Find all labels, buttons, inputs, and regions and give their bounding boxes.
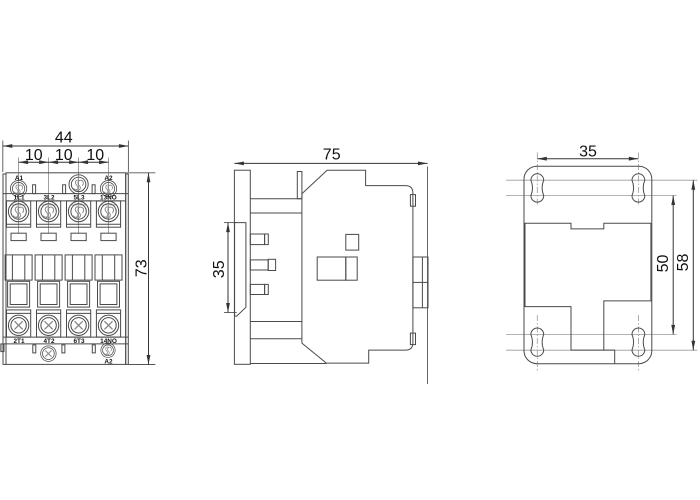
svg-text:2T1: 2T1 — [13, 338, 24, 345]
svg-text:A1: A1 — [15, 175, 24, 182]
svg-text:10: 10 — [86, 147, 104, 164]
svg-text:14NO: 14NO — [100, 338, 117, 345]
svg-text:58: 58 — [675, 254, 692, 272]
svg-text:10: 10 — [25, 147, 43, 164]
svg-text:35: 35 — [579, 144, 597, 161]
svg-text:10: 10 — [55, 147, 73, 164]
svg-text:A2: A2 — [104, 175, 113, 182]
svg-text:44: 44 — [55, 130, 73, 147]
svg-text:75: 75 — [323, 147, 341, 164]
svg-text:35: 35 — [211, 260, 228, 278]
svg-text:50: 50 — [655, 255, 672, 273]
svg-text:6T3: 6T3 — [73, 338, 84, 345]
svg-text:73: 73 — [133, 259, 150, 277]
svg-text:4T2: 4T2 — [43, 338, 54, 345]
svg-text:A2: A2 — [104, 358, 113, 365]
